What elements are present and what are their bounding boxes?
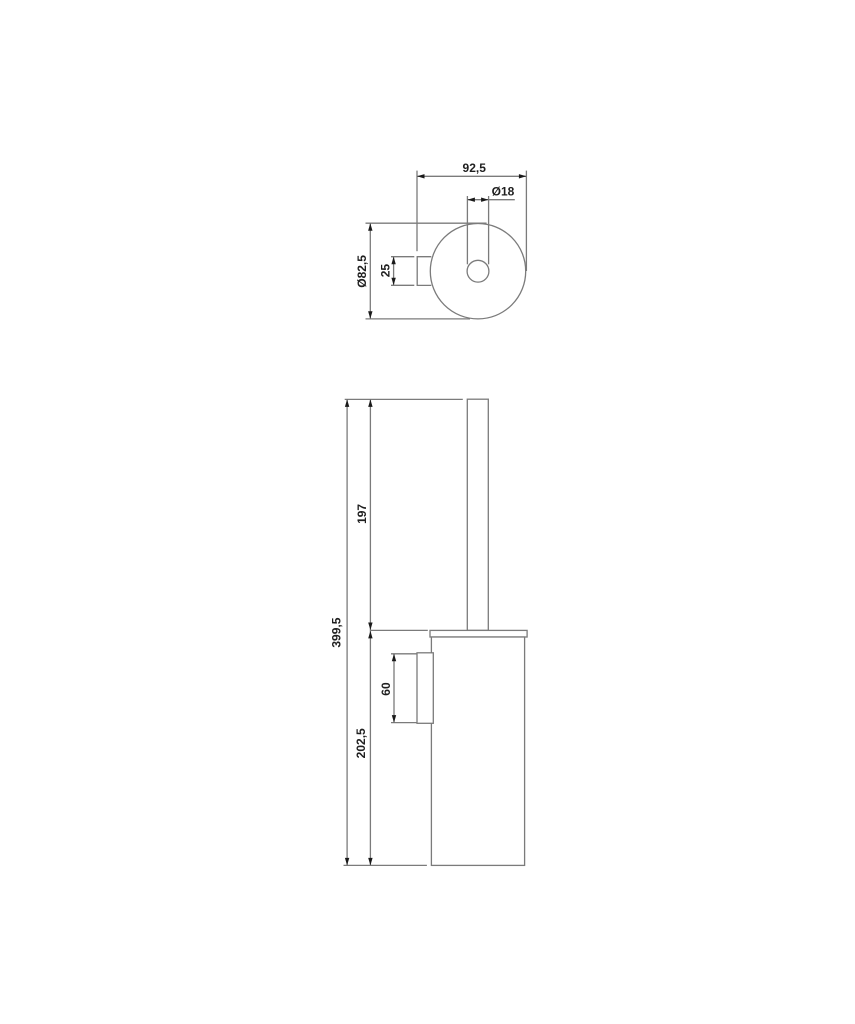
- svg-text:Ø82,5: Ø82,5: [355, 255, 369, 288]
- svg-text:60: 60: [379, 682, 393, 696]
- svg-text:399,5: 399,5: [330, 617, 344, 647]
- svg-text:92,5: 92,5: [463, 161, 487, 175]
- svg-text:Ø18: Ø18: [492, 184, 515, 198]
- svg-text:197: 197: [355, 504, 369, 524]
- svg-text:202,5: 202,5: [354, 728, 368, 758]
- svg-text:25: 25: [378, 264, 392, 278]
